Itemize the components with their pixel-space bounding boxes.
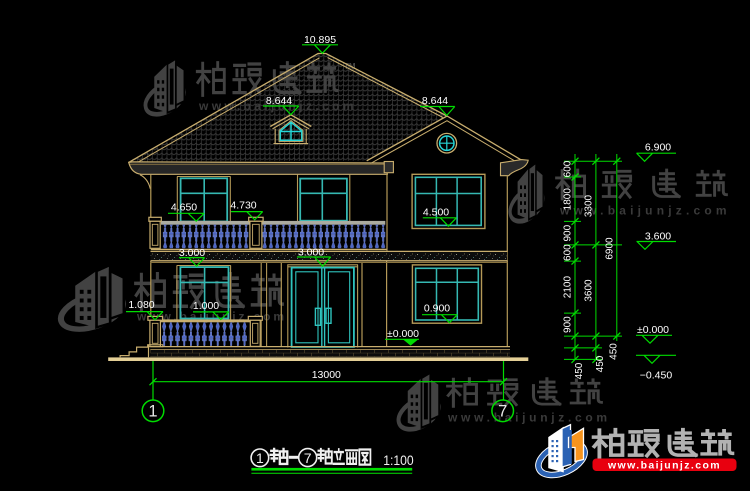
svg-text:8.644: 8.644 — [266, 95, 292, 107]
svg-text:3.600: 3.600 — [645, 231, 671, 243]
svg-text:www.baijunjz.com: www.baijunjz.com — [447, 411, 611, 425]
svg-text:6.900: 6.900 — [645, 142, 671, 154]
svg-text:8.644: 8.644 — [422, 95, 448, 107]
svg-text:4.500: 4.500 — [423, 206, 449, 218]
svg-text:450: 450 — [574, 362, 585, 379]
svg-text:±0.000: ±0.000 — [637, 324, 669, 336]
svg-text:7: 7 — [304, 450, 312, 466]
svg-text:1: 1 — [148, 403, 157, 421]
svg-text:4.730: 4.730 — [230, 200, 256, 212]
svg-text:450: 450 — [609, 343, 620, 360]
svg-text:4.650: 4.650 — [171, 202, 197, 214]
svg-text:6900: 6900 — [604, 237, 615, 260]
svg-text:600: 600 — [563, 160, 574, 177]
svg-text:1.080: 1.080 — [128, 299, 154, 311]
svg-text:1: 1 — [256, 450, 264, 466]
svg-text:3600: 3600 — [583, 279, 594, 302]
svg-text:1.000: 1.000 — [193, 300, 219, 312]
svg-text:±0.000: ±0.000 — [387, 328, 419, 340]
svg-text:600: 600 — [563, 244, 574, 261]
svg-text:900: 900 — [563, 316, 574, 333]
svg-text:−0.450: −0.450 — [640, 370, 673, 382]
svg-text:900: 900 — [563, 224, 574, 241]
svg-text:13000: 13000 — [312, 369, 341, 381]
svg-text:1800: 1800 — [563, 188, 574, 211]
svg-text:450: 450 — [595, 355, 606, 372]
svg-text:1:100: 1:100 — [383, 453, 414, 468]
svg-text:0.900: 0.900 — [424, 302, 450, 314]
svg-text:7: 7 — [498, 403, 507, 421]
svg-text:2100: 2100 — [563, 276, 574, 299]
svg-text:3300: 3300 — [583, 194, 594, 217]
svg-text:www.baijunjz.com: www.baijunjz.com — [607, 459, 721, 471]
